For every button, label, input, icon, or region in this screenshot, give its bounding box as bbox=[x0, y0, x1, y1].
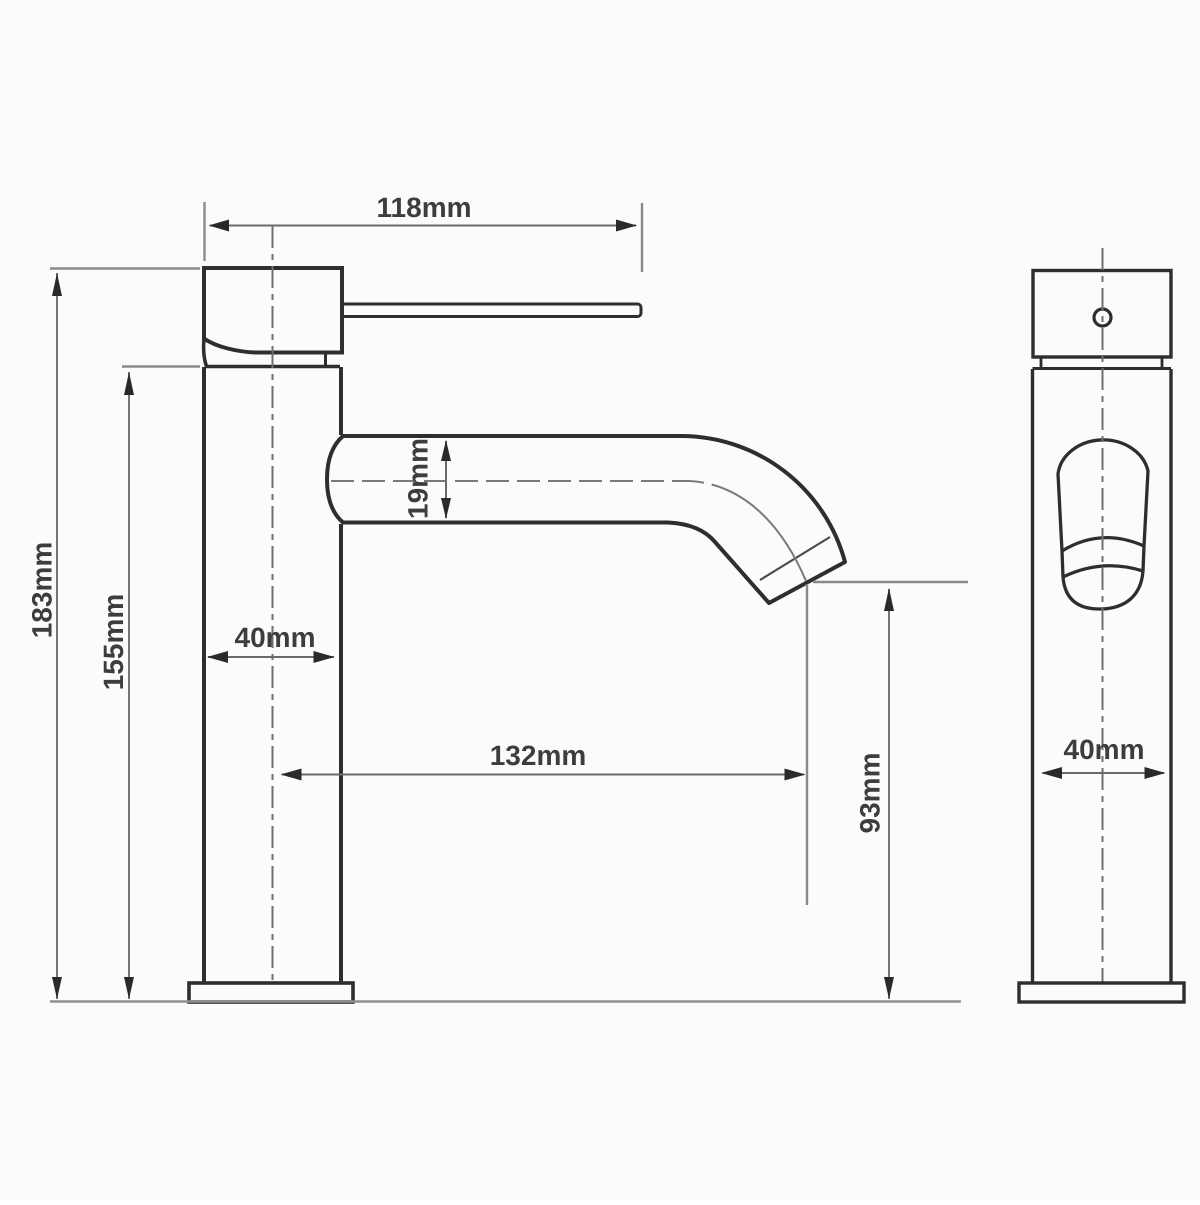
svg-text:19mm: 19mm bbox=[403, 438, 434, 519]
svg-text:93mm: 93mm bbox=[855, 753, 886, 834]
svg-text:118mm: 118mm bbox=[377, 192, 472, 223]
svg-text:132mm: 132mm bbox=[490, 740, 587, 771]
svg-text:40mm: 40mm bbox=[1064, 734, 1145, 765]
svg-text:155mm: 155mm bbox=[98, 594, 129, 691]
svg-text:40mm: 40mm bbox=[235, 622, 316, 653]
svg-text:183mm: 183mm bbox=[27, 542, 58, 639]
